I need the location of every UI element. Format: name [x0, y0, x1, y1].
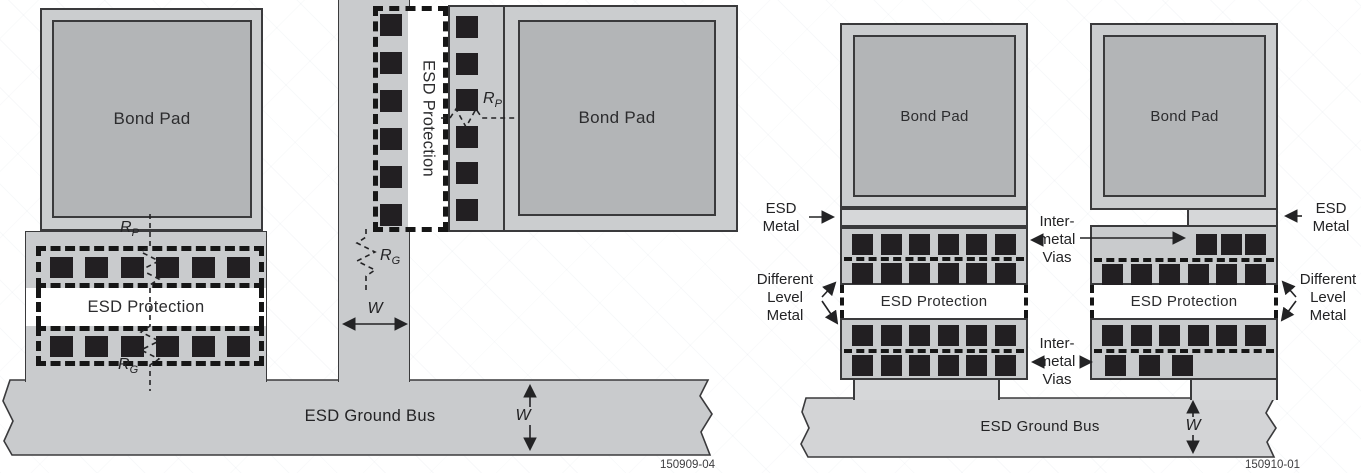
figure-left-id: 150909-04 [620, 456, 715, 473]
different-level-metal-right-label: Different Level Metal [1292, 271, 1361, 325]
resistor-rg-column-label: RG [380, 247, 400, 270]
resistor-rp-rg-left-symbol [141, 214, 159, 391]
different-level-metal-left-label: Different Level Metal [750, 271, 820, 325]
width-column-label: W [361, 300, 389, 318]
resistor-subscript: G [392, 255, 401, 267]
resistor-symbol: R [380, 247, 392, 264]
resistor-subscript: P [495, 98, 502, 110]
label-line: Inter- [1028, 335, 1086, 353]
resistor-rp-left-label: RP [120, 219, 139, 242]
label-line: Level [1292, 289, 1361, 307]
label-line: Vias [1028, 249, 1086, 267]
resistor-rp-column-label: RP [483, 90, 502, 113]
label-line: Metal [755, 218, 807, 236]
resistor-rg-left-label: RG [118, 356, 138, 379]
width-bus-right-label: W [1182, 417, 1204, 435]
annotation-arrows [0, 0, 1361, 473]
label-line: Different [1292, 271, 1361, 289]
label-line: Inter- [1028, 213, 1086, 231]
different-level-metal-left-lower-arrow [822, 301, 837, 323]
esd-layout-diagrams: Bond Pad ESD Protection ESD Protection B… [0, 0, 1361, 473]
label-line: Metal [1292, 307, 1361, 325]
label-line: Vias [1028, 371, 1086, 389]
label-line: ESD [1303, 200, 1359, 218]
resistor-subscript: P [132, 227, 139, 239]
resistor-symbol: R [483, 90, 495, 107]
resistor-symbol: R [120, 219, 132, 236]
ground-bus-left-label: ESD Ground Bus [20, 407, 720, 425]
resistor-symbol: R [118, 356, 130, 373]
width-bus-left-label: W [512, 407, 534, 425]
different-level-metal-left-upper-arrow [822, 283, 835, 297]
inter-metal-vias-bottom-label: Inter- metal Vias [1028, 335, 1086, 389]
resistor-rg-column-symbol [357, 229, 375, 292]
label-line: ESD [755, 200, 807, 218]
label-line: Level [750, 289, 820, 307]
label-line: Metal [750, 307, 820, 325]
ground-bus-right-label: ESD Ground Bus [840, 418, 1240, 436]
inter-metal-vias-top-label: Inter- metal Vias [1028, 213, 1086, 267]
label-line: metal [1028, 353, 1086, 371]
figure-right-id: 150910-01 [1205, 456, 1300, 473]
esd-metal-right-label: ESD Metal [1303, 200, 1359, 236]
resistor-rp-column-symbol [441, 109, 517, 127]
resistor-subscript: G [130, 364, 139, 376]
label-line: Different [750, 271, 820, 289]
label-line: Metal [1303, 218, 1359, 236]
esd-metal-left-label: ESD Metal [755, 200, 807, 236]
label-line: metal [1028, 231, 1086, 249]
